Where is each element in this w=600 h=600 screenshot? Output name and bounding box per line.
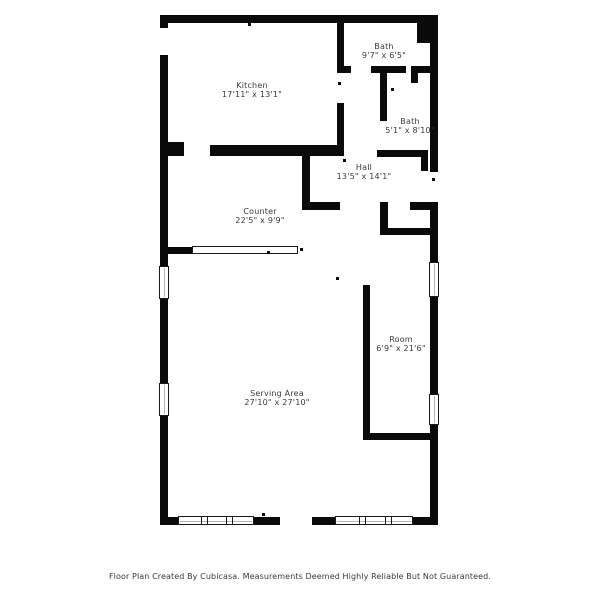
door-marker xyxy=(431,477,434,480)
wall-nook-bottom xyxy=(380,228,438,235)
wall-bath2-bottom xyxy=(377,150,428,157)
wall-kitchen-right-lower xyxy=(337,103,344,156)
room-name: Hall xyxy=(337,163,392,172)
door-marker xyxy=(432,178,435,181)
room-dims: 5'1" x 8'10" xyxy=(385,126,434,135)
wall-kitchen-bottom-block xyxy=(160,142,184,156)
room-label-bath-top: Bath 9'7" x 6'5" xyxy=(362,42,406,60)
door-marker xyxy=(248,23,251,26)
wall-kitchen-bottom xyxy=(210,145,337,156)
door-marker xyxy=(338,82,341,85)
wall-bath1-bottom-a xyxy=(337,66,351,73)
door-marker xyxy=(391,88,394,91)
room-label-room: Room 6'9" x 21'6" xyxy=(376,335,425,353)
wall-counter-stub xyxy=(160,247,193,254)
wall-bath1-step-stub xyxy=(411,73,418,83)
room-name: Room xyxy=(376,335,425,344)
room-label-serving-area: Serving Area 27'10" x 27'10" xyxy=(244,389,309,407)
room-name: Bath xyxy=(385,117,434,126)
wall-topleft-stub xyxy=(160,23,168,28)
door-marker xyxy=(262,513,265,516)
room-label-hall: Hall 13'5" x 14'1" xyxy=(337,163,392,181)
window-right-1 xyxy=(429,262,439,297)
door-marker xyxy=(336,277,339,280)
floor-plan: Kitchen 17'11" x 13'1" Bath 9'7" x 6'5" … xyxy=(0,0,600,600)
room-label-kitchen: Kitchen 17'11" x 13'1" xyxy=(222,81,282,99)
window-bottom-2 xyxy=(335,516,413,525)
wall-room-left xyxy=(363,285,370,440)
room-dims: 9'7" x 6'5" xyxy=(362,51,406,60)
window-right-2 xyxy=(429,394,439,425)
room-dims: 6'9" x 21'6" xyxy=(376,344,425,353)
door-marker xyxy=(343,159,346,162)
wall-kitchen-right-upper xyxy=(337,22,344,67)
wall-bath2-left xyxy=(380,73,387,121)
room-dims: 22'5" x 9'9" xyxy=(235,216,284,225)
window-left-1 xyxy=(159,266,169,299)
wall-outer-right-upper xyxy=(430,15,438,172)
counter-outline xyxy=(192,246,298,254)
window-left-2 xyxy=(159,383,169,416)
wall-room-bottom xyxy=(363,433,438,440)
room-name: Bath xyxy=(362,42,406,51)
room-dims: 13'5" x 14'1" xyxy=(337,172,392,181)
room-name: Serving Area xyxy=(244,389,309,398)
room-label-counter: Counter 22'5" x 9'9" xyxy=(235,207,284,225)
door-marker xyxy=(267,251,270,254)
wall-hall-left-horz xyxy=(302,202,340,210)
door-marker xyxy=(431,345,434,348)
door-marker xyxy=(300,248,303,251)
room-name: Counter xyxy=(235,207,284,216)
wall-bath2-bottom-stub xyxy=(421,157,428,171)
wall-outer-top xyxy=(160,15,438,23)
window-bottom-1 xyxy=(178,516,254,525)
wall-bath1-bottom-c xyxy=(411,66,430,73)
room-dims: 27'10" x 27'10" xyxy=(244,398,309,407)
room-label-bath-mid: Bath 5'1" x 8'10" xyxy=(385,117,434,135)
room-name: Kitchen xyxy=(222,81,282,90)
footer-disclaimer: Floor Plan Created By Cubicasa. Measurem… xyxy=(0,572,600,581)
wall-nook-top-right xyxy=(410,202,438,210)
wall-bath1-bottom-b xyxy=(371,66,406,73)
room-dims: 17'11" x 13'1" xyxy=(222,90,282,99)
